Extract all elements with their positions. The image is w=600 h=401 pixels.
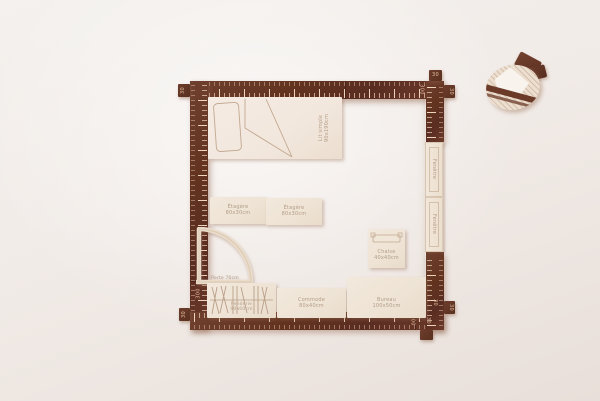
door-swing-piece: Porte 70cm	[196, 227, 253, 285]
window-piece-top: Fenêtre	[425, 142, 443, 197]
ruler-ticks	[439, 256, 443, 326]
ruler-number: 30	[448, 88, 453, 95]
desk-piece: Bureau 100x50cm	[347, 277, 426, 318]
wooden-disc	[483, 61, 544, 115]
dresser-piece: Commode 80x40cm	[277, 288, 346, 318]
ruler-ticks	[191, 85, 195, 326]
bed-piece: Lit simple 90x190cm	[208, 97, 342, 159]
wooden-disc-stack	[486, 56, 548, 112]
window-label: Fenêtre	[431, 199, 437, 249]
corner-tab: 30	[429, 70, 442, 81]
bed-label: Lit simple 90x190cm	[318, 98, 330, 158]
ruler-ticks	[427, 85, 432, 138]
door-label: Porte 70cm	[204, 276, 246, 281]
corner-tab: 30	[179, 308, 190, 321]
corner-tab	[420, 330, 433, 340]
photo-of-wooden-room-planner: 30 30 30 30 30 300 300 30 300 30 Fenêtre…	[0, 0, 600, 401]
wardrobe-piece: Penderie 90x60cm	[207, 283, 276, 318]
ruler-ticks	[427, 85, 436, 138]
ruler-ticks	[427, 256, 436, 326]
ruler-number: 30	[182, 311, 187, 318]
corner-tab: 30	[444, 301, 455, 314]
ruler-number: 30	[432, 73, 439, 78]
ruler-number: 300	[419, 84, 424, 94]
window-label: Fenêtre	[431, 144, 437, 194]
shelf-piece-left: Étagère 80x30cm	[210, 197, 266, 224]
shelf-piece-right: Étagère 80x30cm	[266, 198, 322, 225]
ruler-number: 30	[425, 317, 430, 324]
wardrobe-label: Penderie 90x60cm	[207, 302, 276, 313]
ruler-number: 30	[448, 304, 453, 311]
ruler-number: 300	[197, 288, 202, 298]
window-piece-bottom: Fenêtre	[425, 197, 443, 252]
corner-tab: 30	[178, 84, 190, 97]
ruler-ticks	[194, 325, 440, 329]
ruler-ticks	[427, 256, 432, 326]
dresser-label: Commode 80x40cm	[277, 297, 346, 309]
ruler-ticks	[439, 85, 443, 138]
ruler-ticks	[194, 82, 440, 86]
corner-tab: 30	[444, 85, 455, 98]
ruler-number: 30	[432, 299, 437, 306]
chair-label: Chaise 40x40cm	[368, 249, 405, 261]
desk-label: Bureau 100x50cm	[347, 297, 426, 309]
frame-wall-right-ruler-upper	[426, 81, 444, 142]
chair-piece: Chaise 40x40cm	[368, 229, 405, 268]
shelf-label: Étagère 80x30cm	[210, 204, 266, 216]
ruler-number: 30	[181, 87, 186, 94]
shelf-label: Étagère 80x30cm	[266, 205, 322, 217]
